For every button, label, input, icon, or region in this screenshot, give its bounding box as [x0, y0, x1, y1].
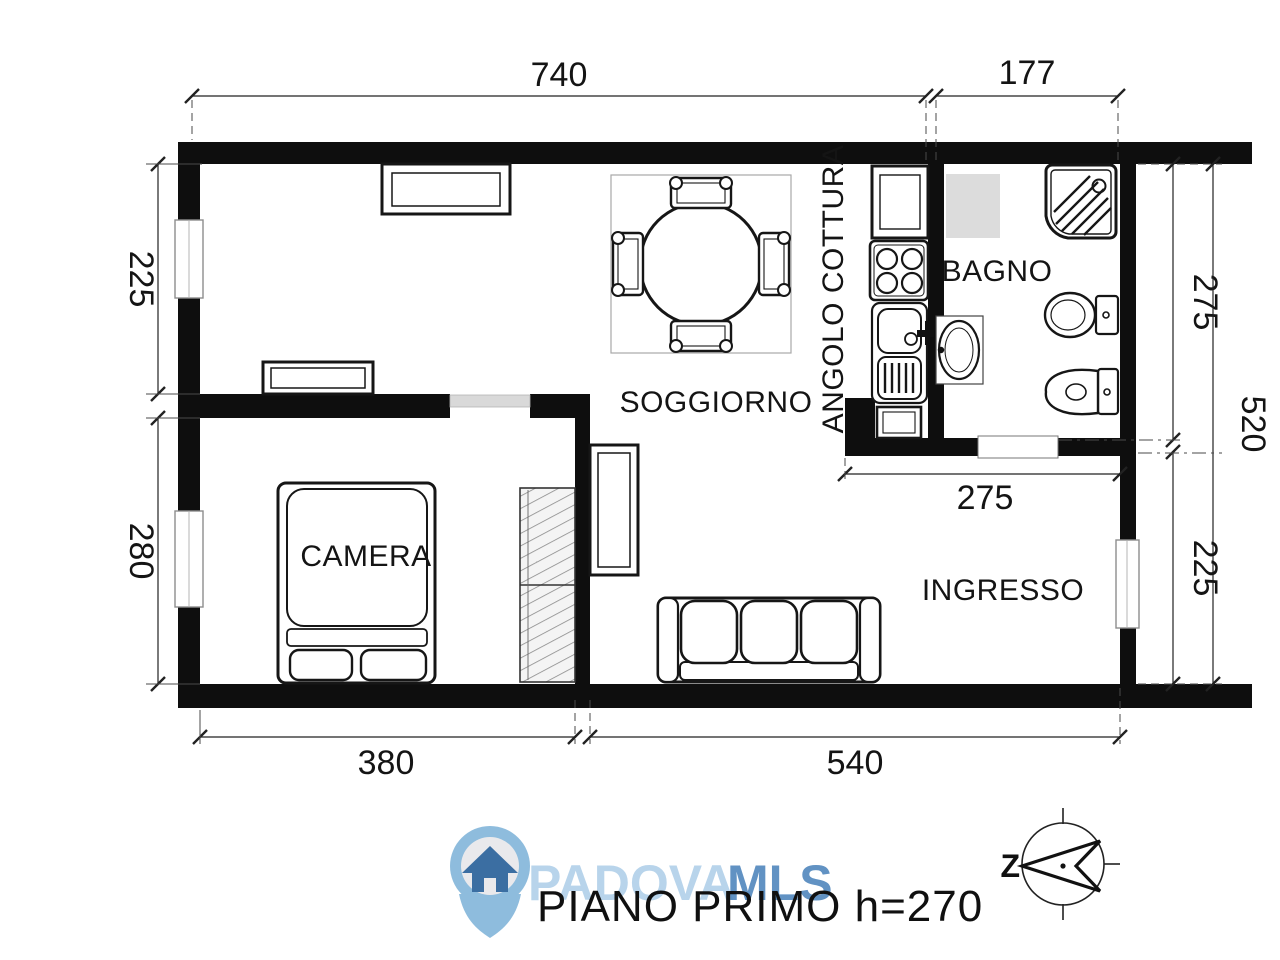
shower-zone-gray — [946, 174, 1000, 238]
kitchen-sink — [872, 303, 934, 403]
wall-bottom — [178, 684, 1252, 708]
map-pin-house-icon — [450, 826, 530, 938]
dining-set — [611, 175, 791, 353]
wall-top — [178, 142, 1252, 164]
dimension-right-225: 225 — [1166, 445, 1224, 691]
radiator-vertical — [590, 445, 638, 575]
fridge — [872, 166, 928, 238]
label-kitchenette: ANGOLO COTTURA — [817, 145, 850, 434]
bidet — [1045, 293, 1118, 337]
label-living: SOGGIORNO — [620, 386, 813, 419]
dim-value: 280 — [122, 523, 160, 580]
sink-faucet — [938, 347, 944, 353]
bed-foot-rail — [287, 629, 427, 646]
dim-value: 177 — [999, 54, 1056, 92]
double-bed — [278, 483, 435, 683]
dim-value: 540 — [827, 744, 884, 782]
shower-tray — [1046, 165, 1116, 238]
dining-chair-bottom — [670, 321, 732, 352]
toilet — [1046, 369, 1118, 414]
cooktop — [870, 241, 928, 300]
wall-bedroom-vertical — [575, 394, 590, 684]
dining-chair-right — [759, 232, 790, 296]
dim-value: 225 — [122, 251, 160, 308]
floor-title: PIANO PRIMO h=270 — [537, 882, 983, 931]
bathroom-door-opening — [978, 436, 1058, 458]
dim-value: 275 — [1186, 274, 1224, 331]
kitchen-faucet-handle — [925, 321, 930, 345]
sofa-cushion — [741, 601, 797, 663]
dining-chair-top — [670, 177, 732, 208]
dimension-right-520: 520 — [1206, 157, 1272, 691]
north-compass: Z — [1000, 808, 1120, 920]
dimension-right-275: 275 — [1166, 157, 1224, 447]
dim-value: 380 — [358, 744, 415, 782]
sofa-cushion — [681, 601, 737, 663]
north-letter: Z — [1000, 848, 1020, 884]
dim-value: 740 — [531, 56, 588, 94]
bedroom-door-leaf — [450, 395, 530, 407]
sofa-back — [680, 662, 858, 680]
kitchen-cabinet — [877, 407, 921, 438]
dim-value: 520 — [1234, 396, 1272, 453]
radiator-middle — [263, 362, 373, 394]
dimension-bottom-380: 380 — [193, 700, 582, 782]
label-bedroom: CAMERA — [300, 540, 431, 573]
kitchenette-units — [870, 166, 934, 438]
sofa — [658, 598, 880, 682]
bed-pillow — [361, 650, 426, 680]
floor-plan-canvas: SOGGIORNO CAMERA BAGNO INGRESSO ANGOLO C… — [0, 0, 1280, 960]
dimension-bath-275: 275 — [838, 458, 1127, 517]
dim-value: 225 — [1186, 540, 1224, 597]
wardrobe — [520, 488, 575, 682]
dining-table — [640, 203, 762, 325]
dim-value: 275 — [957, 479, 1014, 517]
radiator-top — [382, 164, 510, 214]
bathroom-sink — [936, 316, 983, 384]
sofa-cushion — [801, 601, 857, 663]
wall-kitchen-bath — [928, 164, 944, 440]
label-bathroom: BAGNO — [942, 255, 1053, 288]
floor-plan-page: SOGGIORNO CAMERA BAGNO INGRESSO ANGOLO C… — [0, 0, 1280, 960]
bed-pillow — [290, 650, 352, 680]
label-entry: INGRESSO — [922, 574, 1084, 607]
dining-chair-left — [612, 232, 643, 296]
